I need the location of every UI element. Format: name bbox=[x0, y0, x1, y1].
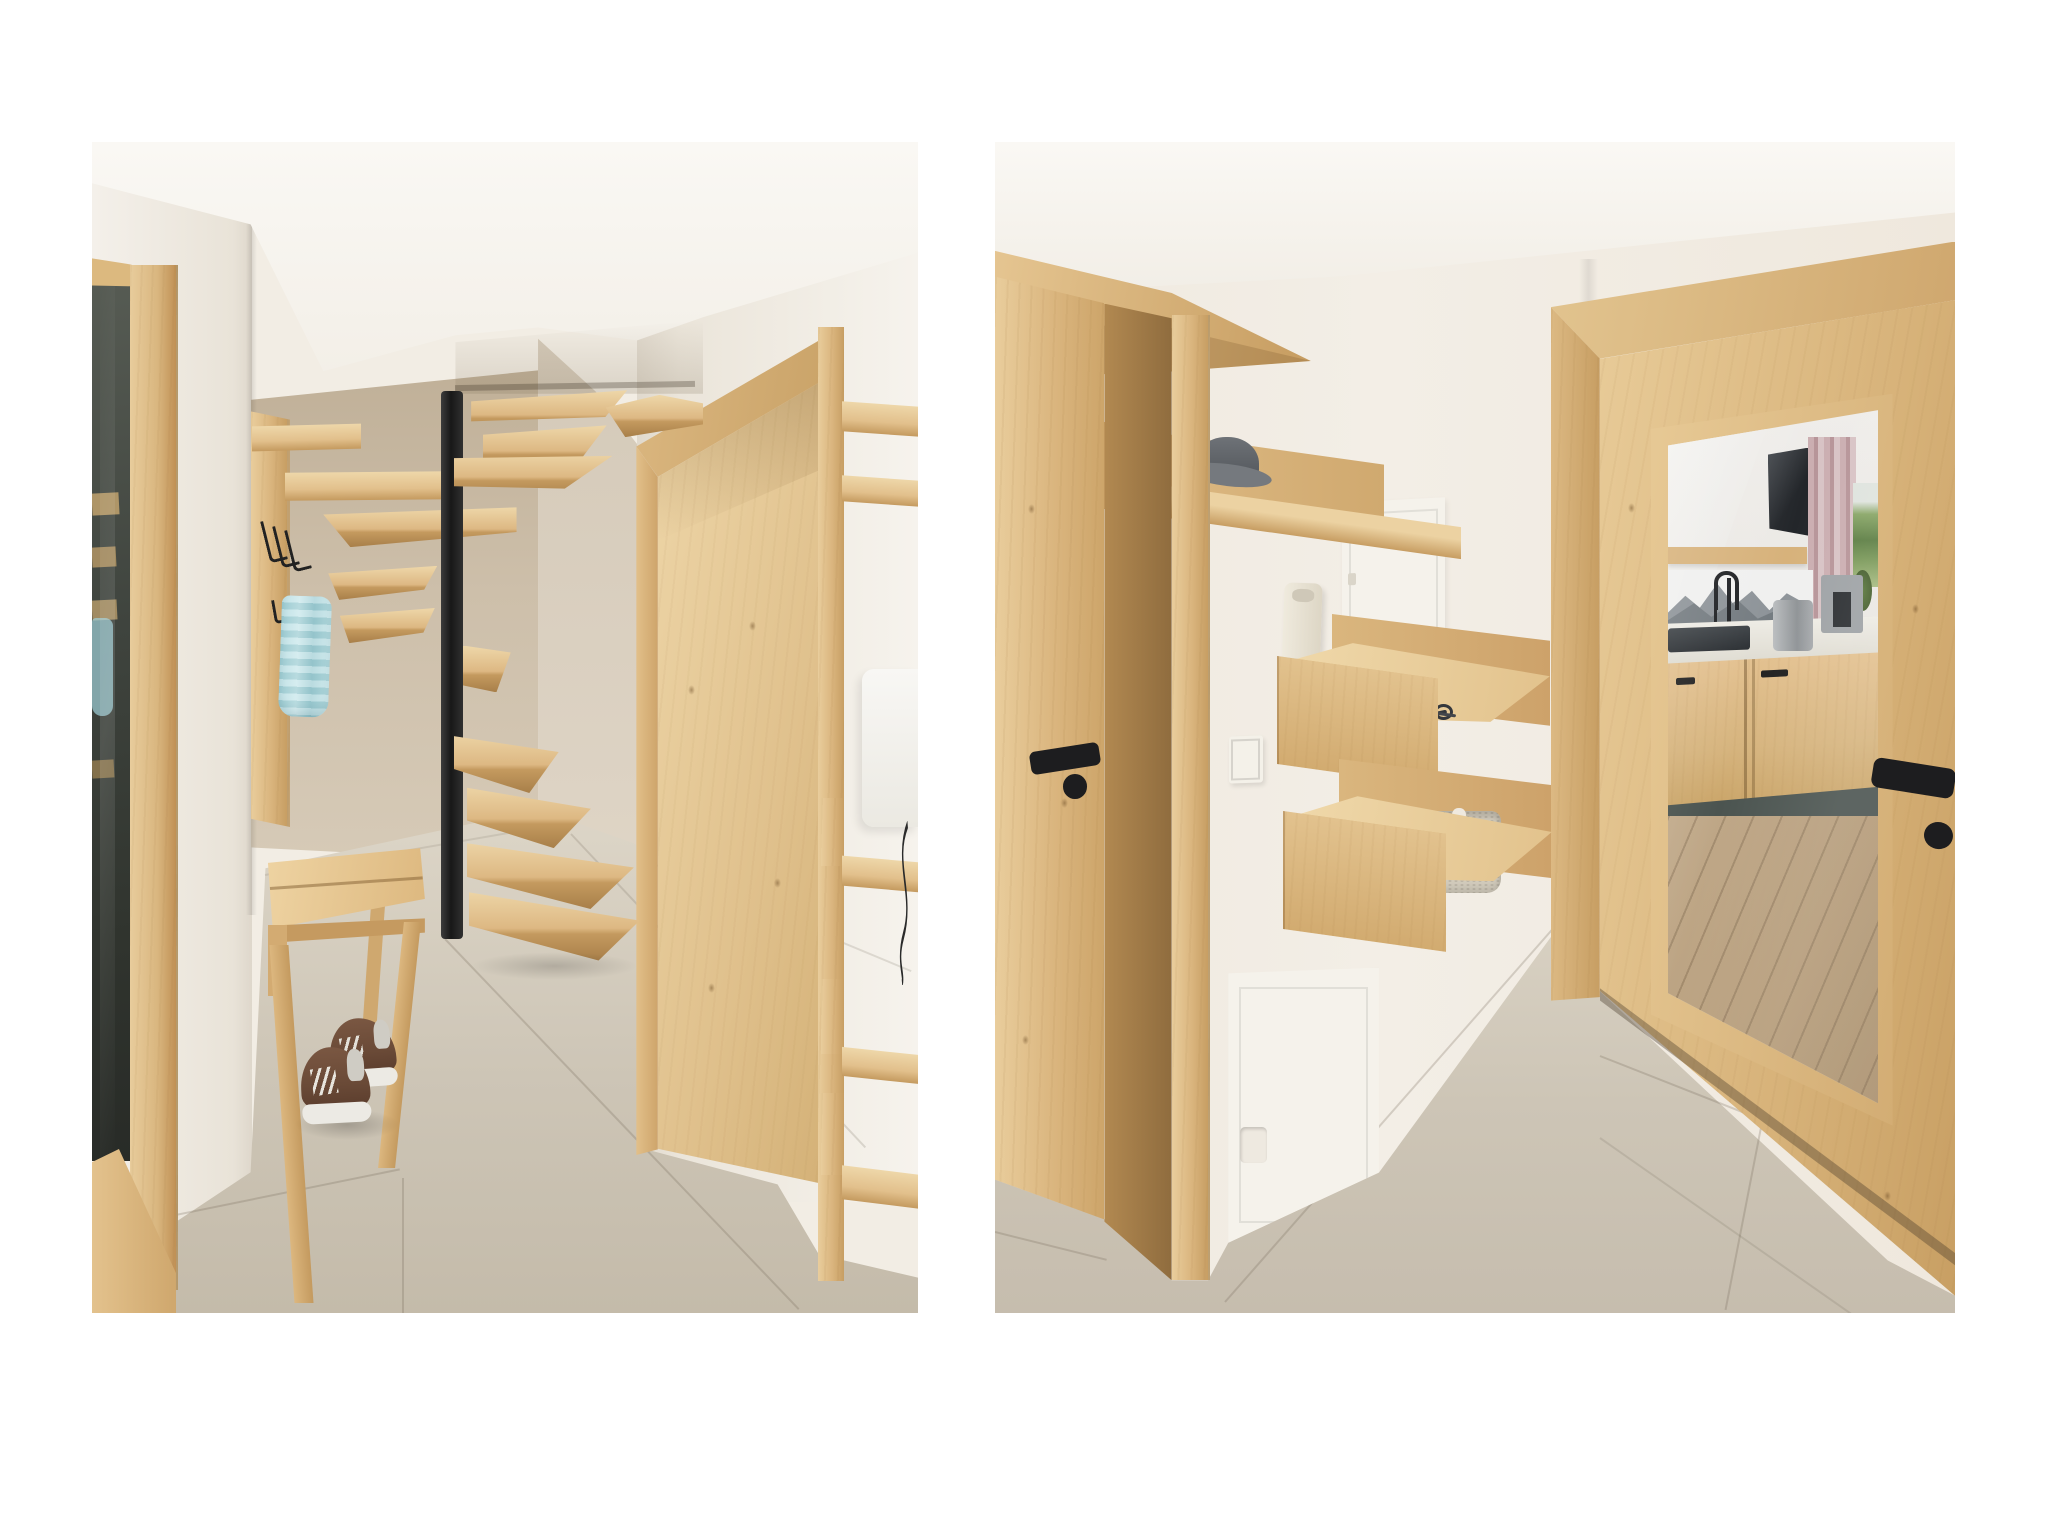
sneaker-sole bbox=[302, 1102, 372, 1125]
mirror-reflection-kitchen bbox=[1668, 410, 1878, 1103]
door-handle-lever bbox=[1028, 742, 1101, 776]
open-door-frame bbox=[1172, 315, 1210, 1280]
mirror-sheen bbox=[1668, 410, 1878, 1103]
radiator bbox=[862, 669, 918, 827]
edge-shelf-side bbox=[821, 1093, 845, 1175]
edge-shelf-side bbox=[821, 979, 845, 1054]
key-shelf bbox=[1277, 610, 1550, 774]
sneaker-laces bbox=[310, 1066, 339, 1097]
glass-reflection-streak bbox=[100, 271, 115, 1161]
hand-towel bbox=[278, 596, 332, 718]
service-panel-handle bbox=[1240, 1127, 1267, 1163]
stair-floor-shadow bbox=[472, 952, 637, 980]
open-door-handle bbox=[1030, 736, 1100, 800]
floor-grout-line bbox=[402, 1178, 404, 1313]
open-door-edge bbox=[1104, 304, 1171, 1281]
edge-shelf-board bbox=[842, 402, 918, 438]
light-switch bbox=[1229, 735, 1263, 783]
niche-frame-jamb bbox=[636, 446, 658, 1160]
page-background bbox=[0, 0, 2048, 1538]
edge-shelf-board bbox=[842, 475, 918, 506]
basket-shelf bbox=[1283, 756, 1552, 941]
edge-shelf-side bbox=[821, 798, 845, 866]
mirror-door-architrave-jamb bbox=[1551, 307, 1600, 1003]
intercom-earpiece bbox=[1292, 589, 1314, 603]
render-hallway-stairs bbox=[92, 142, 918, 1313]
long-wall-board bbox=[285, 472, 449, 502]
sneaker-heel-tab bbox=[346, 1049, 364, 1082]
radiator-cable bbox=[888, 821, 916, 985]
glass-door bbox=[92, 271, 130, 1161]
light-switch-rocker bbox=[1232, 738, 1261, 779]
render-entry-mirror-door bbox=[995, 142, 1955, 1313]
door-handle-rosette bbox=[1063, 774, 1087, 798]
glass-door-frame-jamb bbox=[130, 265, 178, 1290]
sneaker-front bbox=[299, 1045, 372, 1125]
wardrobe-niche-interior bbox=[658, 380, 824, 1184]
electrical-panel-latch bbox=[1348, 573, 1356, 586]
coat-shelf bbox=[252, 424, 361, 451]
shelf-front-face bbox=[1283, 811, 1446, 952]
sneaker-heel-tab bbox=[373, 1019, 391, 1049]
